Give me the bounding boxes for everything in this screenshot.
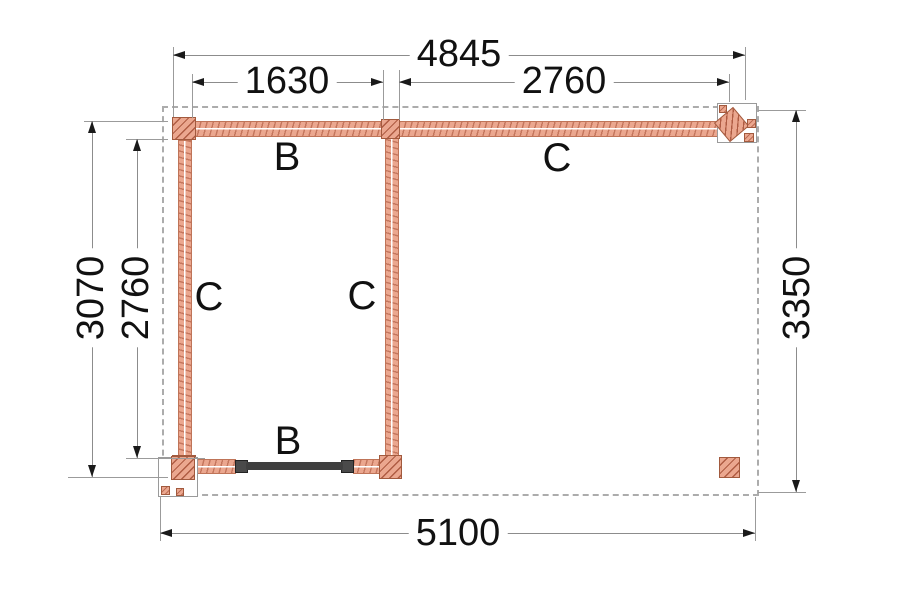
arrowhead-icon [399,78,411,86]
anchor-block-icon [176,488,184,496]
arrowhead-icon [133,139,141,151]
arrowhead-icon [743,529,755,537]
post-bottom-middle [379,455,402,479]
extension-line [745,47,746,100]
extension-line [68,477,168,478]
beam-top [193,121,718,137]
extension-line [84,121,168,122]
extension-line [383,70,384,120]
extension-line [755,497,756,541]
post-top-middle [381,119,400,139]
beam-bottom-right-piece [353,459,382,474]
roof-outline [162,106,759,496]
label-beam-c-left: C [195,277,224,317]
anchor-block-icon [744,133,754,142]
arrowhead-icon [192,78,204,86]
label-beam-b-bottom: B [275,421,302,461]
arrowhead-icon [792,110,800,122]
anchor-block-icon [719,105,727,113]
arrowhead-icon [717,78,729,86]
arrowhead-icon [160,529,172,537]
post-bottom-right [719,457,740,478]
label-beam-c-top-right: C [543,138,572,178]
extension-line [729,74,730,102]
dimension-value-left-outer: 3070 [72,249,112,348]
anchor-block-icon [161,486,170,495]
slide-rail [246,462,343,470]
arrowhead-icon [792,480,800,492]
label-beam-b-top: B [274,137,301,177]
arrowhead-icon [371,78,383,86]
dimension-value-top-right-bay: 2760 [515,62,614,102]
arrowhead-icon [88,465,96,477]
beam-bottom-left-piece [196,459,236,474]
anchor-block-icon [747,119,756,128]
floor-plan-canvas: B C C C B 4845 1630 2760 3070 2760 3350 [0,0,900,600]
arrowhead-icon [133,446,141,458]
arrowhead-icon [733,51,745,59]
dimension-value-left-inner: 2760 [117,249,157,348]
beam-middle-wall [385,138,399,458]
post-top-left [172,117,196,140]
extension-line [126,458,205,459]
dimension-value-top-overall: 4845 [410,35,509,75]
arrowhead-icon [88,121,96,133]
dimension-value-bottom-overall: 5100 [409,514,508,554]
dimension-value-top-left-bay: 1630 [238,62,337,102]
beam-left-wall [178,140,192,457]
dimension-value-right-side: 3350 [778,249,818,348]
arrowhead-icon [173,51,185,59]
wall-anchor-post-bottom-left [171,456,195,480]
extension-line [758,492,806,493]
label-beam-c-middle: C [348,276,377,316]
